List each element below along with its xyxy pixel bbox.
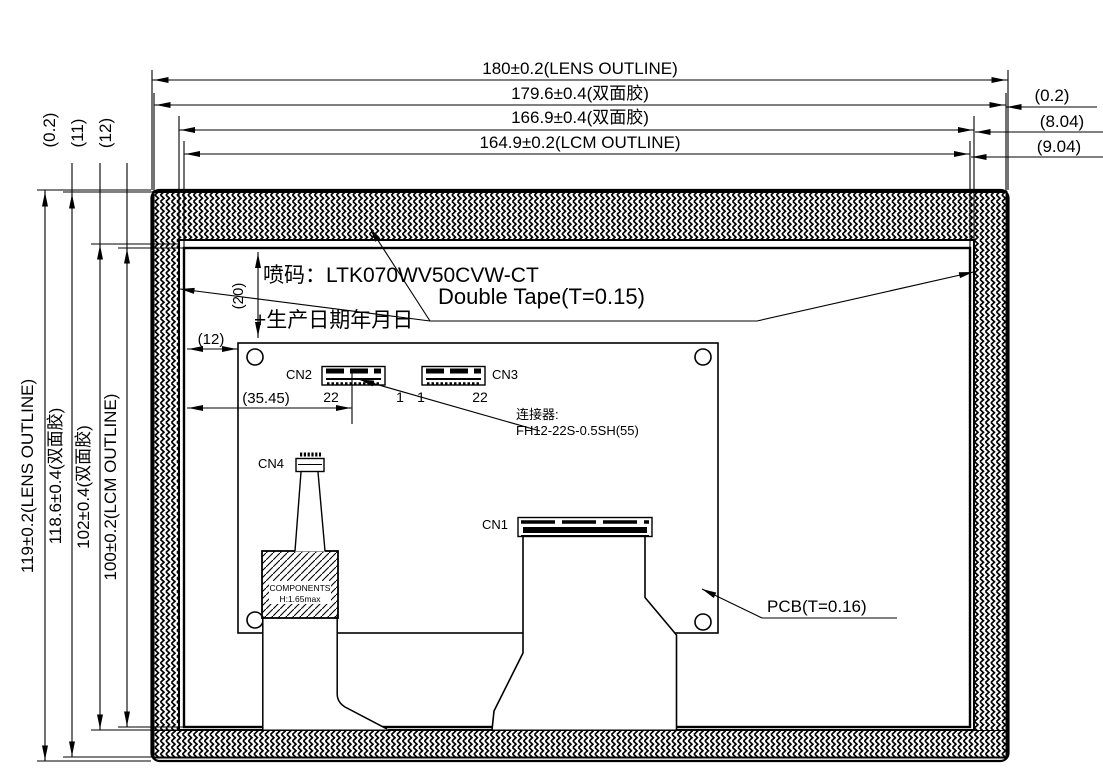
pcb-label: PCB(T=0.16) — [767, 597, 867, 616]
dim-cn2-offset: (35.45) — [242, 390, 290, 407]
cn1-connector — [518, 518, 652, 537]
dim-right-offset-2: (8.04) — [1040, 112, 1084, 131]
components-area: COMPONENTS H:1.65max — [262, 551, 338, 618]
dim-left-top-offset-1: (0.2) — [40, 113, 59, 148]
connector-note-line2: FH12-22S-0.5SH(55) — [516, 423, 639, 438]
pcb-hole-top-left — [247, 349, 263, 365]
cn2-label: CN2 — [286, 367, 312, 382]
cn2-pin-left: 22 — [323, 389, 339, 405]
dim-pcb-left-offset: (12) — [198, 331, 225, 348]
components-height-label: H:1.65max — [279, 594, 321, 604]
lcm-engineering-drawing: COMPONENTS H:1.65max 喷码：LTK070WV50CVW-CT… — [0, 0, 1103, 778]
pcb-hole-bottom-left — [247, 612, 263, 628]
dim-lens-width: 180±0.2(LENS OUTLINE) — [482, 59, 677, 78]
dim-left-top-offset-3: (12) — [96, 118, 115, 148]
dim-left-top-offset-2: (11) — [68, 119, 87, 148]
right-dimension-labels: (0.2) (8.04) (9.04) — [1035, 86, 1085, 156]
components-label: COMPONENTS — [270, 583, 331, 593]
marking-text-line2: +生产日期年月日 — [254, 309, 413, 332]
cn3-pin-right: 22 — [472, 389, 488, 405]
cn4-label: CN4 — [258, 456, 284, 471]
pcb-hole-top-right — [695, 349, 711, 365]
cn3-connector — [422, 367, 485, 386]
cn3-label: CN3 — [492, 367, 518, 382]
dim-lens-height: 119±0.2(LENS OUTLINE) — [18, 379, 37, 573]
dim-tape-outer-height: 118.6±0.4(双面胶) — [46, 408, 65, 545]
dim-lcm-width: 164.9±0.2(LCM OUTLINE) — [479, 133, 680, 152]
drawing-svg: COMPONENTS H:1.65max 喷码：LTK070WV50CVW-CT… — [0, 0, 1103, 778]
dim-tape-outer-width: 179.6±0.4(双面胶) — [511, 84, 649, 103]
dim-tape-inner-height: 102±0.4(双面胶) — [74, 425, 93, 549]
connector-note-line1: 连接器: — [516, 407, 559, 422]
dim-lcm-height: 100±0.2(LCM OUTLINE) — [101, 394, 120, 581]
cn2-connector — [322, 367, 385, 386]
left-dimension-labels: 119±0.2(LENS OUTLINE) 118.6±0.4(双面胶) 102… — [18, 113, 120, 581]
dim-right-offset-3: (9.04) — [1037, 137, 1081, 156]
dim-right-offset-1: (0.2) — [1035, 86, 1070, 105]
cn1-label: CN1 — [482, 517, 508, 532]
pcb-hole-bottom-right — [695, 614, 711, 630]
dim-tape-inner-width: 166.9±0.4(双面胶) — [511, 108, 649, 127]
double-tape-label: Double Tape(T=0.15) — [438, 284, 645, 309]
